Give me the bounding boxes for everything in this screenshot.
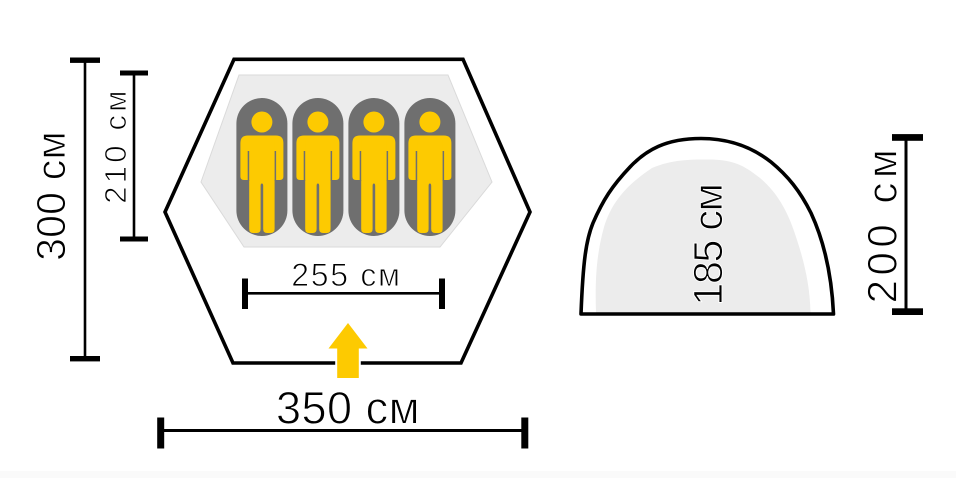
svg-text:210 см: 210 см [98,87,133,203]
svg-text:185 см: 185 см [685,184,731,305]
svg-text:255 см: 255 см [291,257,401,293]
svg-text:300 см: 300 см [28,131,74,261]
svg-text:350 см: 350 см [276,383,420,434]
svg-text:200 см: 200 см [859,145,906,304]
